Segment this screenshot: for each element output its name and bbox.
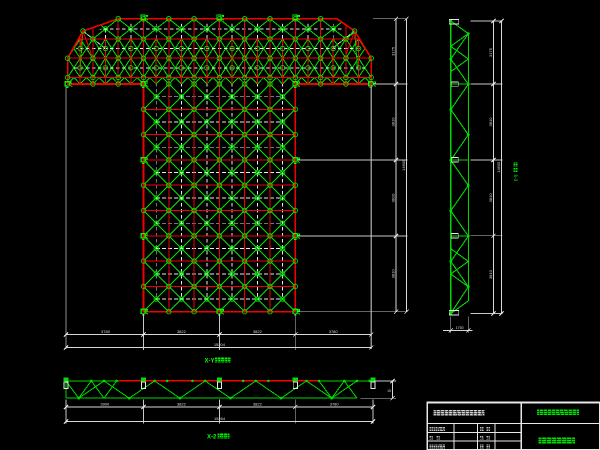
svg-text:14605: 14605 (496, 161, 501, 173)
svg-text:3810: 3810 (488, 269, 493, 279)
svg-text:3822: 3822 (253, 329, 263, 334)
svg-text:3900: 3900 (100, 402, 110, 407)
svg-text:1750: 1750 (456, 326, 464, 330)
svg-text:1-1: 1-1 (512, 175, 518, 182)
svg-text:3822: 3822 (177, 329, 187, 334)
svg-text:3810: 3810 (488, 117, 493, 127)
svg-text:3810: 3810 (391, 269, 396, 279)
svg-text:3780: 3780 (329, 329, 339, 334)
svg-text:X-2: X-2 (207, 435, 217, 441)
svg-text:3175: 3175 (391, 46, 396, 56)
svg-text:3780: 3780 (101, 329, 111, 334)
svg-text:15: 15 (387, 389, 391, 393)
svg-text:3810: 3810 (391, 193, 396, 203)
svg-text:X-Y: X-Y (205, 359, 215, 365)
svg-text:15264: 15264 (214, 416, 226, 421)
svg-text:14605: 14605 (401, 159, 406, 171)
svg-text:3175: 3175 (488, 47, 493, 57)
svg-text:3810: 3810 (391, 117, 396, 127)
svg-text:3822: 3822 (253, 402, 263, 407)
svg-text:3822: 3822 (177, 402, 187, 407)
svg-text:3810: 3810 (488, 193, 493, 203)
svg-text:3780: 3780 (330, 402, 340, 407)
svg-text:15204: 15204 (214, 342, 226, 347)
